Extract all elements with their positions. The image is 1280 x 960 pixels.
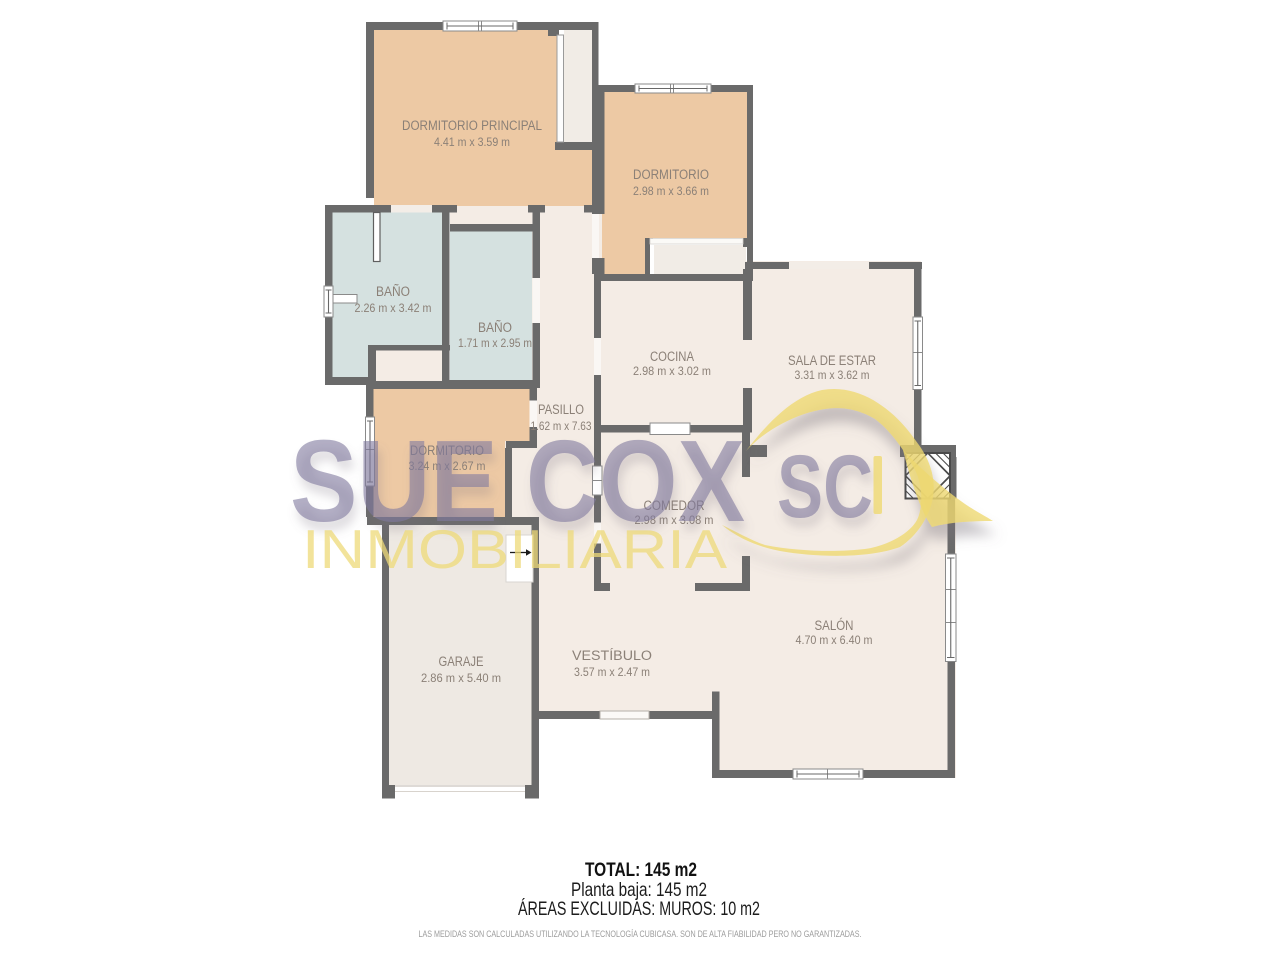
svg-text:TOTAL: 145 m2: TOTAL: 145 m2 [585, 859, 697, 881]
svg-text:2.26 m x 3.42 m: 2.26 m x 3.42 m [355, 303, 432, 315]
svg-text:SC: SC [777, 436, 873, 536]
svg-text:SALA DE ESTAR: SALA DE ESTAR [788, 353, 876, 368]
svg-text:BAÑO: BAÑO [376, 284, 410, 299]
svg-text:PASILLO: PASILLO [538, 402, 584, 417]
svg-text:ÁREAS EXCLUIDAS: MUROS: 10 m2: ÁREAS EXCLUIDAS: MUROS: 10 m2 [518, 897, 760, 920]
svg-text:2.86 m x 5.40 m: 2.86 m x 5.40 m [421, 673, 501, 685]
svg-text:BAÑO: BAÑO [478, 320, 512, 335]
svg-text:COCINA: COCINA [650, 349, 694, 364]
svg-text:DORMITORIO PRINCIPAL: DORMITORIO PRINCIPAL [402, 118, 542, 133]
svg-text:1.71 m x 2.95 m: 1.71 m x 2.95 m [458, 338, 532, 350]
svg-text:4.70 m x 6.40 m: 4.70 m x 6.40 m [796, 635, 873, 647]
svg-text:DORMITORIO: DORMITORIO [633, 167, 709, 182]
svg-text:SALÓN: SALÓN [815, 618, 854, 633]
svg-text:3.57 m x 2.47 m: 3.57 m x 2.47 m [574, 667, 650, 679]
svg-text:3.31 m x 3.62 m: 3.31 m x 3.62 m [795, 370, 870, 382]
svg-text:2.98 m x 3.02 m: 2.98 m x 3.02 m [633, 366, 711, 378]
svg-text:LAS MEDIDAS SON CALCULADAS UTI: LAS MEDIDAS SON CALCULADAS UTILIZANDO LA… [419, 929, 862, 940]
svg-text:4.41 m x 3.59 m: 4.41 m x 3.59 m [434, 137, 510, 149]
svg-text:2.98 m x 3.66 m: 2.98 m x 3.66 m [633, 186, 709, 198]
svg-text:INMOBILIARIA: INMOBILIARIA [302, 518, 727, 580]
svg-text:GARAJE: GARAJE [439, 654, 484, 669]
svg-text:VESTÍBULO: VESTÍBULO [572, 648, 652, 663]
